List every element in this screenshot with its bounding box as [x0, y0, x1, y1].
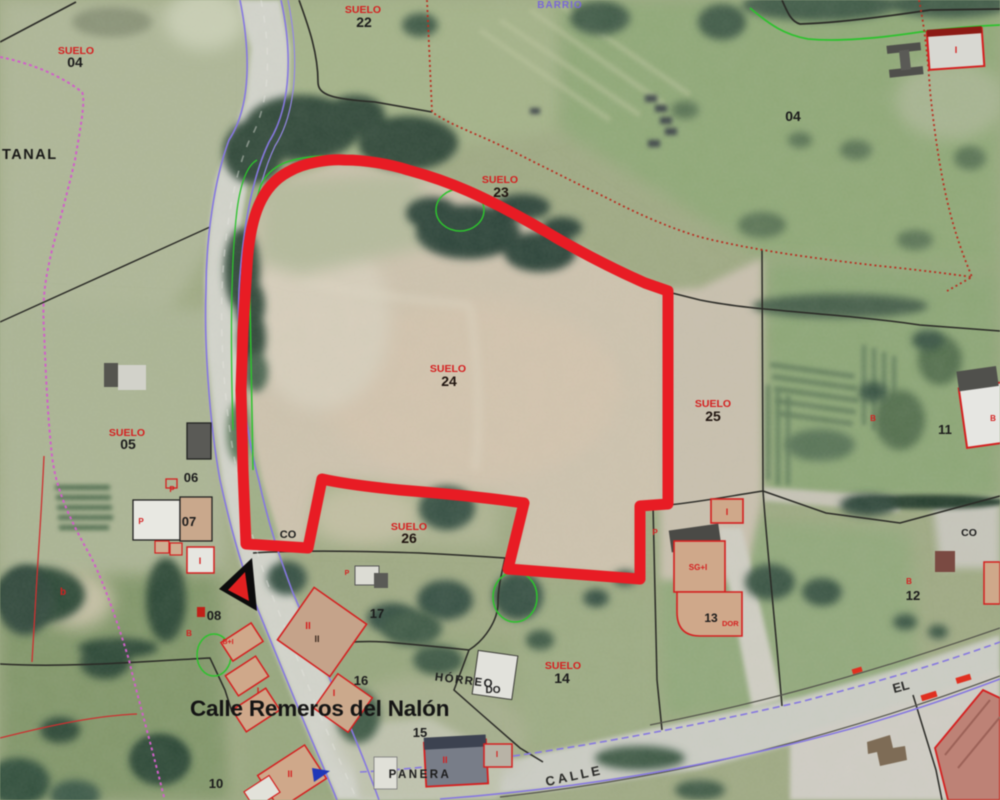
svg-text:P: P: [169, 485, 175, 494]
svg-text:B: B: [990, 414, 996, 423]
svg-text:12: 12: [906, 588, 920, 603]
svg-text:10: 10: [209, 776, 223, 791]
svg-text:B: B: [870, 414, 876, 423]
svg-text:26: 26: [401, 530, 417, 546]
svg-text:04: 04: [67, 54, 83, 70]
svg-text:P: P: [138, 517, 144, 526]
svg-text:b: b: [60, 587, 66, 598]
svg-text:P: P: [345, 570, 350, 577]
svg-text:I: I: [257, 686, 260, 696]
svg-text:23: 23: [493, 184, 509, 200]
svg-text:II: II: [305, 621, 311, 632]
svg-text:22: 22: [356, 14, 372, 30]
svg-text:SG+I: SG+I: [689, 563, 707, 572]
svg-text:DO: DO: [486, 685, 501, 696]
svg-text:II: II: [287, 769, 292, 779]
svg-text:TANAL: TANAL: [2, 147, 58, 163]
svg-text:16: 16: [354, 673, 368, 688]
svg-text:04: 04: [785, 108, 801, 124]
svg-text:14: 14: [554, 670, 570, 686]
svg-text:I: I: [199, 556, 202, 566]
svg-text:BARRIO: BARRIO: [537, 0, 582, 11]
svg-text:P: P: [652, 528, 658, 537]
svg-text:11: 11: [938, 422, 952, 437]
svg-text:25: 25: [705, 408, 721, 424]
svg-text:B: B: [906, 577, 912, 586]
svg-text:PANERA: PANERA: [389, 769, 452, 781]
svg-text:CO: CO: [280, 529, 297, 541]
svg-text:II: II: [314, 634, 319, 644]
svg-text:06: 06: [184, 470, 198, 485]
svg-text:II: II: [442, 755, 447, 765]
svg-text:13: 13: [704, 611, 718, 625]
svg-text:24: 24: [441, 373, 457, 389]
svg-text:08: 08: [207, 608, 221, 623]
svg-text:15: 15: [413, 725, 427, 740]
svg-text:DOR: DOR: [722, 619, 739, 628]
svg-text:B+I: B+I: [222, 639, 233, 646]
svg-text:CO: CO: [961, 527, 977, 539]
svg-text:I: I: [726, 507, 729, 517]
svg-text:I: I: [955, 45, 958, 55]
svg-text:05: 05: [120, 436, 136, 452]
svg-text:I: I: [496, 750, 498, 759]
svg-text:Calle Remeros del Nalón: Calle Remeros del Nalón: [190, 696, 449, 721]
svg-text:B: B: [186, 629, 192, 638]
svg-text:17: 17: [370, 606, 384, 621]
svg-text:07: 07: [182, 514, 196, 529]
